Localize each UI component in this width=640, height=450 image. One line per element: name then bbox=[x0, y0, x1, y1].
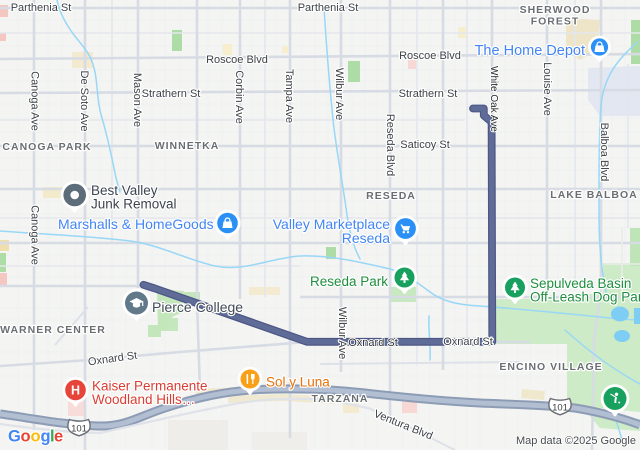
svg-text:Canoga Ave: Canoga Ave bbox=[29, 71, 41, 131]
svg-text:Junk Removal: Junk Removal bbox=[91, 197, 177, 212]
svg-text:Wilbur Ave: Wilbur Ave bbox=[333, 68, 345, 120]
svg-text:Strathern St: Strathern St bbox=[399, 88, 458, 100]
svg-text:101: 101 bbox=[552, 403, 568, 414]
svg-text:WARNER CENTER: WARNER CENTER bbox=[0, 324, 106, 336]
svg-text:Balboa Blvd: Balboa Blvd bbox=[598, 123, 610, 182]
svg-text:Louise Ave: Louise Ave bbox=[541, 62, 553, 116]
svg-text:Parthenia St: Parthenia St bbox=[298, 2, 359, 14]
svg-text:Pierce College: Pierce College bbox=[152, 299, 243, 315]
svg-text:Reseda Park: Reseda Park bbox=[310, 274, 388, 289]
svg-text:Canoga Ave: Canoga Ave bbox=[29, 205, 41, 265]
svg-text:LAKE BALBOA: LAKE BALBOA bbox=[550, 189, 637, 201]
svg-text:RESEDA: RESEDA bbox=[366, 190, 416, 202]
svg-text:Mason Ave: Mason Ave bbox=[131, 73, 143, 127]
svg-text:Parthenia St: Parthenia St bbox=[11, 2, 72, 14]
svg-text:Strathern St: Strathern St bbox=[142, 88, 201, 100]
svg-text:Oxnard St: Oxnard St bbox=[443, 336, 493, 348]
svg-text:H: H bbox=[71, 383, 80, 397]
svg-text:Saticoy St: Saticoy St bbox=[400, 139, 450, 151]
svg-text:Marshalls & HomeGoods: Marshalls & HomeGoods bbox=[58, 216, 214, 232]
svg-text:101: 101 bbox=[71, 424, 87, 435]
svg-text:Corbin Ave: Corbin Ave bbox=[233, 70, 245, 124]
svg-text:Sol y Luna: Sol y Luna bbox=[266, 375, 330, 390]
svg-text:Reseda: Reseda bbox=[342, 230, 390, 246]
svg-text:Off-Leash Dog Par: Off-Leash Dog Par bbox=[530, 290, 640, 305]
svg-text:Woodland Hills…: Woodland Hills… bbox=[92, 392, 195, 407]
svg-text:Roscoe Blvd: Roscoe Blvd bbox=[206, 54, 268, 66]
svg-text:Map data ©2025 Google: Map data ©2025 Google bbox=[516, 435, 636, 447]
svg-text:Oxnard St: Oxnard St bbox=[348, 337, 398, 349]
svg-text:White Oak Ave: White Oak Ave bbox=[488, 66, 499, 132]
svg-text:WINNETKA: WINNETKA bbox=[155, 140, 220, 152]
svg-text:CANOGA PARK: CANOGA PARK bbox=[2, 141, 91, 153]
svg-text:Reseda Blvd: Reseda Blvd bbox=[384, 114, 396, 176]
svg-text:The Home Depot: The Home Depot bbox=[475, 43, 585, 59]
svg-text:Tampa Ave: Tampa Ave bbox=[283, 69, 295, 123]
svg-text:FOREST: FOREST bbox=[531, 16, 580, 28]
svg-text:e: e bbox=[54, 428, 63, 446]
svg-text:Roscoe Blvd: Roscoe Blvd bbox=[399, 50, 461, 62]
svg-text:G: G bbox=[8, 428, 21, 446]
svg-text:o: o bbox=[21, 428, 31, 446]
svg-text:TARZANA: TARZANA bbox=[312, 393, 369, 405]
svg-text:Wilbur Ave: Wilbur Ave bbox=[336, 307, 348, 359]
svg-text:ENCINO VILLAGE: ENCINO VILLAGE bbox=[499, 361, 602, 373]
svg-text:o: o bbox=[31, 428, 41, 446]
svg-text:SHERWOOD: SHERWOOD bbox=[520, 4, 591, 16]
svg-text:De Soto Ave: De Soto Ave bbox=[78, 71, 90, 132]
